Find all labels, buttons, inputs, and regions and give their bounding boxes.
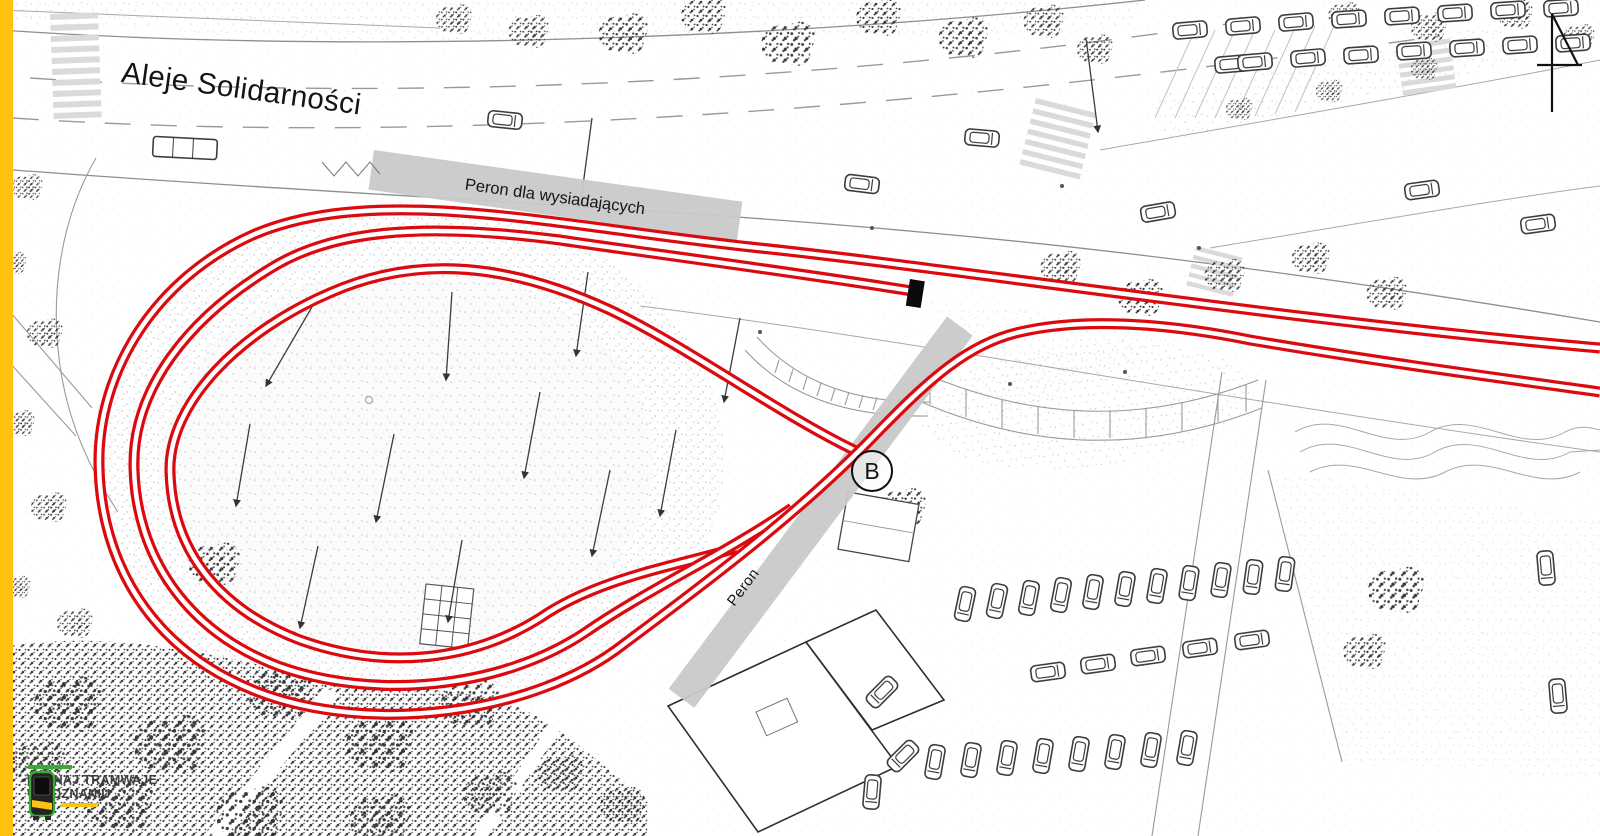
brand-logo: POZNAJ TRAMWAJE W POZNANIU <box>27 763 157 807</box>
site-plan-canvas <box>0 0 1600 836</box>
tram-logo-icon <box>27 763 57 821</box>
bus-icon <box>153 136 218 159</box>
stop-badge: B <box>851 450 893 492</box>
logo-yellow-bar <box>61 803 98 807</box>
edge-accent-strip <box>0 0 13 836</box>
shelter <box>420 584 474 649</box>
